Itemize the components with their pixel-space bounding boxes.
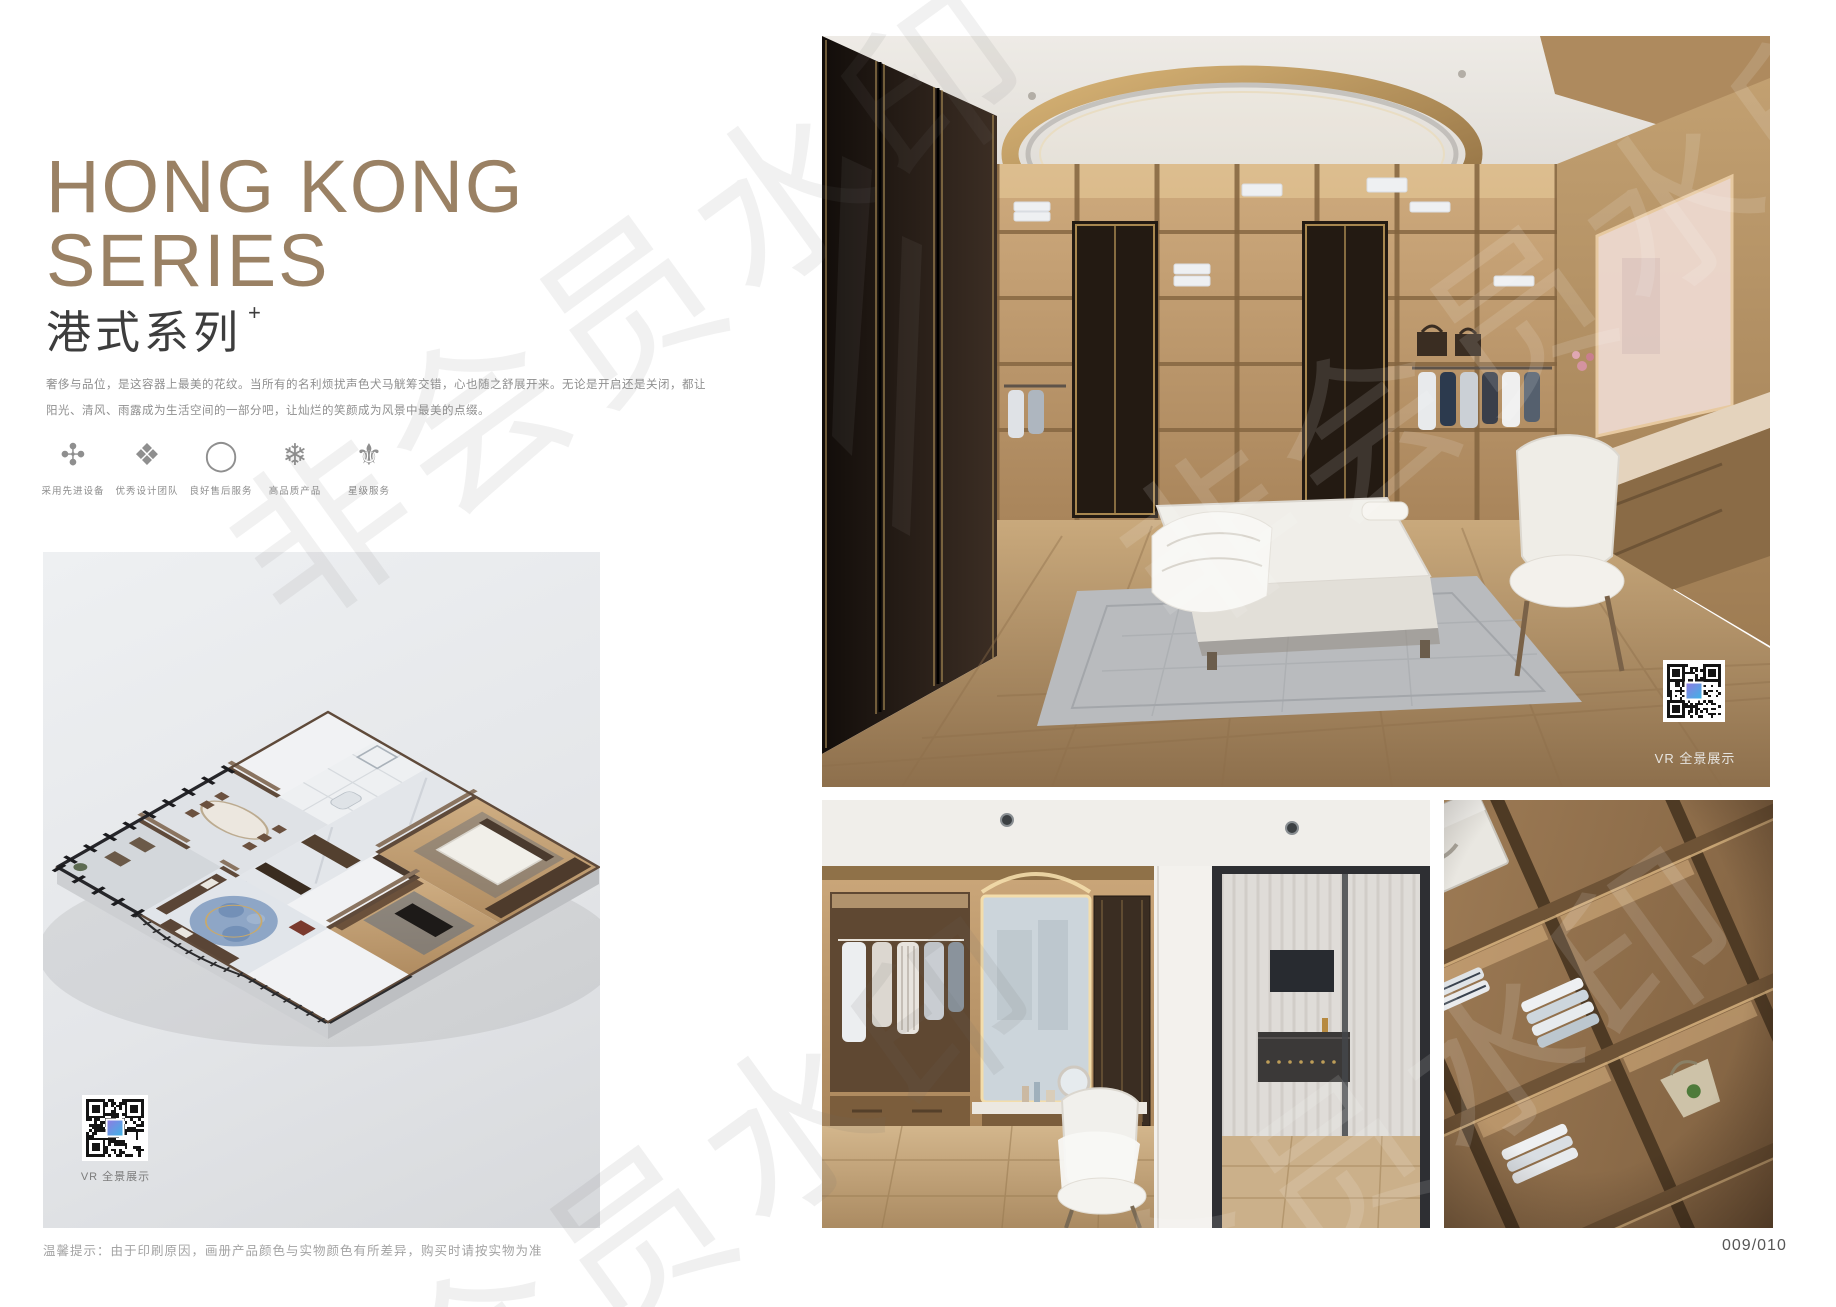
page-number: 009/010: [1722, 1237, 1787, 1255]
ornament-diamond-icon: ❖: [114, 438, 180, 474]
floorplan-qr: [82, 1095, 148, 1161]
pinwheel-flower-icon: ✣: [40, 438, 106, 474]
vr-cube-logo-icon: [1685, 682, 1704, 701]
shelf-closeup-photo: [1444, 800, 1773, 1228]
series-title-en-line1: HONG KONG: [46, 150, 524, 224]
feature-label: 星级服务: [336, 483, 402, 497]
floorplan-vr-label: VR 全景展示: [73, 1168, 158, 1184]
circle-ring-icon: ◯: [188, 438, 254, 474]
print-notice: 温馨提示：由于印刷原因，画册产品颜色与实物颜色有所差异，购买时请按实物为准: [43, 1240, 543, 1259]
walk-in-closet-photo: VR 全景展示: [822, 36, 1770, 787]
floorplan-image: VR 全景展示: [43, 552, 600, 1228]
main-photo-qr: [1663, 660, 1725, 722]
feature-advanced-equipment: ✣ 采用先进设备: [40, 438, 106, 497]
main-photo-vr-label: VR 全景展示: [1650, 748, 1740, 767]
feature-star-service: ⚜ 星级服务: [336, 438, 402, 497]
snowflake-icon: ❄: [262, 438, 328, 474]
fleur-ornament-icon: ⚜: [336, 438, 402, 474]
feature-design-team: ❖ 优秀设计团队: [114, 438, 180, 497]
feature-label: 良好售后服务: [188, 483, 254, 497]
plus-mark: +: [248, 300, 265, 325]
feature-label: 优秀设计团队: [114, 483, 180, 497]
series-title-en: HONG KONG SERIES: [46, 150, 524, 298]
draped-blanket: [1152, 512, 1272, 613]
catalog-page: HONG KONG SERIES 港式系列+ 奢侈与品位，是这容器上最美的花纹。…: [0, 0, 1836, 1307]
feature-label: 采用先进设备: [40, 483, 106, 497]
series-title-cn: 港式系列+: [46, 296, 265, 361]
series-description: 奢侈与品位，是这容器上最美的花纹。当所有的名利烦扰声色犬马觥筹交错，心也随之舒展…: [46, 372, 706, 424]
dark-glass-wardrobe: [822, 36, 997, 754]
series-title-en-line2: SERIES: [46, 224, 524, 298]
feature-quality-product: ❄ 高品质产品: [262, 438, 328, 497]
feature-label: 高品质产品: [262, 483, 328, 497]
dressing-area-photo: [822, 800, 1430, 1228]
feature-after-sales: ◯ 良好售后服务: [188, 438, 254, 497]
dressing-chair: [1058, 1088, 1146, 1228]
adjacent-room: [1212, 866, 1430, 1228]
vr-cube-logo-icon: [106, 1119, 125, 1138]
ceiling: [822, 800, 1430, 870]
feature-list: ✣ 采用先进设备 ❖ 优秀设计团队 ◯ 良好售后服务 ❄ 高品质产品 ⚜ 星级服…: [40, 438, 402, 497]
pillar: [1154, 866, 1212, 1228]
wall-shelving: [997, 164, 1557, 520]
series-title-cn-text: 港式系列: [46, 307, 242, 358]
